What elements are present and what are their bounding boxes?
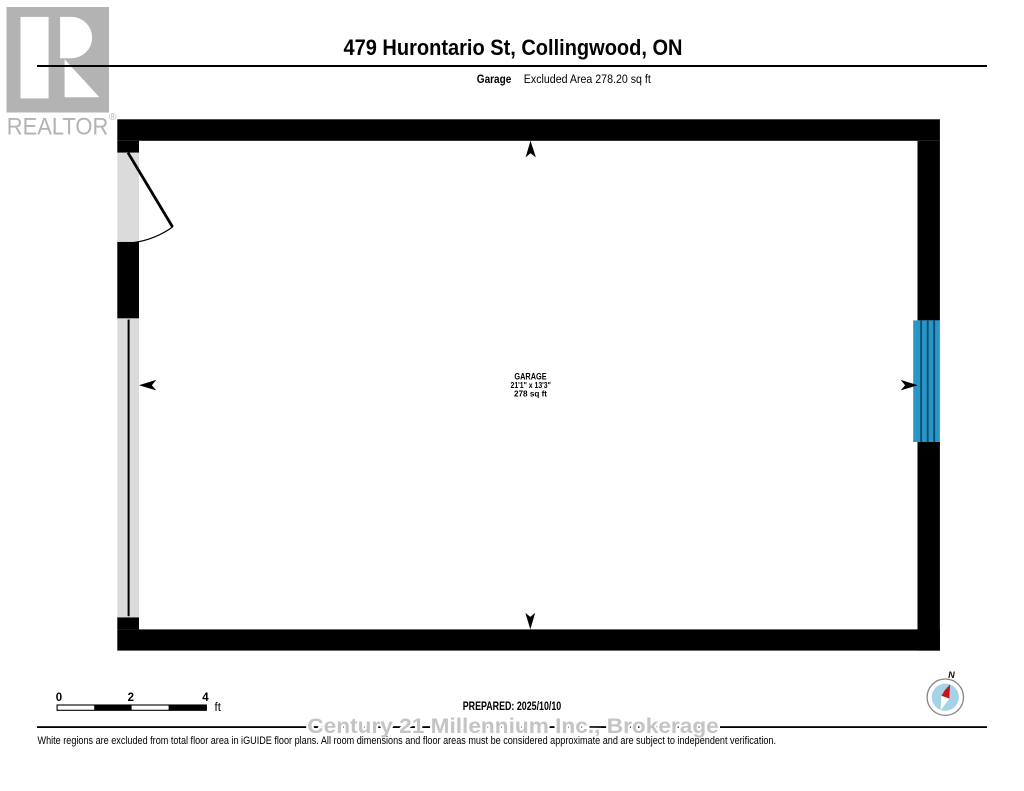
svg-text:White regions are excluded fro: White regions are excluded from total fl… xyxy=(38,735,777,747)
svg-text:278 sq ft: 278 sq ft xyxy=(514,389,547,399)
svg-text:0: 0 xyxy=(56,692,62,704)
svg-text:4: 4 xyxy=(202,692,209,704)
svg-text:PREPARED: 2025/10/10: PREPARED: 2025/10/10 xyxy=(463,700,562,713)
svg-text:®: ® xyxy=(109,112,117,123)
svg-text:N: N xyxy=(948,670,955,680)
svg-text:ft: ft xyxy=(215,702,222,714)
svg-text:479 Hurontario St, Collingwood: 479 Hurontario St, Collingwood, ON xyxy=(344,35,683,60)
svg-text:2: 2 xyxy=(128,692,134,704)
svg-text:REALTOR: REALTOR xyxy=(7,114,109,141)
svg-text:Excluded Area 278.20 sq ft: Excluded Area 278.20 sq ft xyxy=(524,72,652,86)
svg-text:Garage: Garage xyxy=(477,72,512,86)
